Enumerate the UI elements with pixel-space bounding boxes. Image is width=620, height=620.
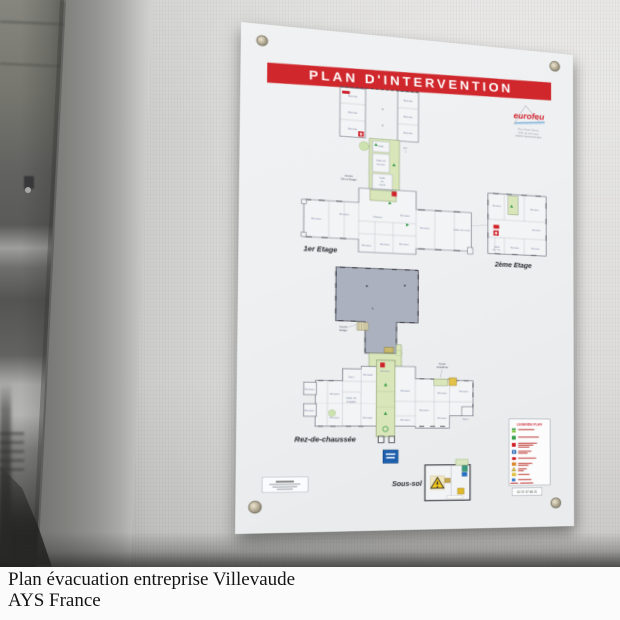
svg-text:Bureau: Bureau — [532, 228, 540, 232]
svg-text:Salle: Salle — [378, 144, 384, 148]
svg-text:Bureau: Bureau — [420, 408, 429, 412]
svg-text:réunion: réunion — [376, 162, 385, 166]
svg-text:Bureau: Bureau — [381, 369, 390, 373]
svg-text:1er Etage: 1er Etage — [303, 244, 338, 254]
svg-text:réunion: réunion — [346, 399, 356, 403]
svg-text:Bureau: Bureau — [404, 99, 414, 103]
svg-text:Bureau: Bureau — [531, 247, 539, 251]
svg-text:Bureau: Bureau — [348, 110, 358, 114]
svg-text:Bureau: Bureau — [438, 416, 447, 420]
svg-text:Sani.: Sani. — [348, 375, 355, 379]
svg-text:de réu.: de réu. — [493, 248, 501, 252]
svg-text:Bureau: Bureau — [362, 243, 372, 247]
svg-text:2ème Etage: 2ème Etage — [494, 260, 532, 270]
svg-text:Bureau: Bureau — [363, 416, 373, 420]
svg-text:Bureau: Bureau — [348, 127, 358, 131]
svg-text:Bureau: Bureau — [348, 94, 358, 98]
svg-text:Bureau: Bureau — [330, 392, 340, 396]
svg-text:Bureau: Bureau — [311, 217, 321, 221]
svg-text:Bureau: Bureau — [330, 416, 340, 420]
svg-text:Rez-de-chaussée: Rez-de-chaussée — [294, 435, 356, 443]
svg-text:Etage: Etage — [340, 328, 348, 332]
svg-text:Bureau: Bureau — [511, 246, 520, 250]
svg-text:Platea.: Platea. — [373, 215, 382, 219]
svg-text:Bureau: Bureau — [400, 214, 410, 218]
svg-text:Bureau: Bureau — [459, 390, 468, 394]
svg-text:Bureau: Bureau — [493, 204, 502, 208]
svg-text:Salle: Salle — [379, 176, 385, 180]
svg-text:Sous-sol: Sous-sol — [392, 479, 423, 488]
svg-text:Bureau: Bureau — [401, 418, 410, 422]
svg-text:Bureau: Bureau — [401, 389, 410, 393]
svg-text:Bureau: Bureau — [399, 242, 409, 246]
svg-text:eurofeu: eurofeu — [513, 111, 544, 122]
svg-text:repos: repos — [379, 183, 386, 187]
svg-text:Salle de: Salle de — [376, 159, 386, 163]
svg-text:Bureau: Bureau — [363, 373, 373, 377]
svg-text:Bureau: Bureau — [380, 242, 390, 246]
svg-text:chaufferie: chaufferie — [436, 365, 448, 369]
svg-text:Bureau: Bureau — [438, 391, 447, 395]
svg-text:Bureau: Bureau — [305, 409, 315, 413]
svg-text:Bureau: Bureau — [420, 226, 430, 230]
svg-text:Sani.: Sani. — [463, 417, 469, 421]
svg-text:Bureau: Bureau — [340, 212, 350, 216]
svg-text:Bureau: Bureau — [305, 387, 315, 391]
svg-text:Bureau: Bureau — [530, 208, 538, 212]
svg-text:02 37 37 68 21: 02 37 37 68 21 — [517, 490, 537, 494]
svg-text:LEGENDE PLAN: LEGENDE PLAN — [517, 423, 542, 427]
svg-text:Bureau: Bureau — [403, 115, 413, 119]
svg-text:Bureau: Bureau — [403, 131, 413, 135]
